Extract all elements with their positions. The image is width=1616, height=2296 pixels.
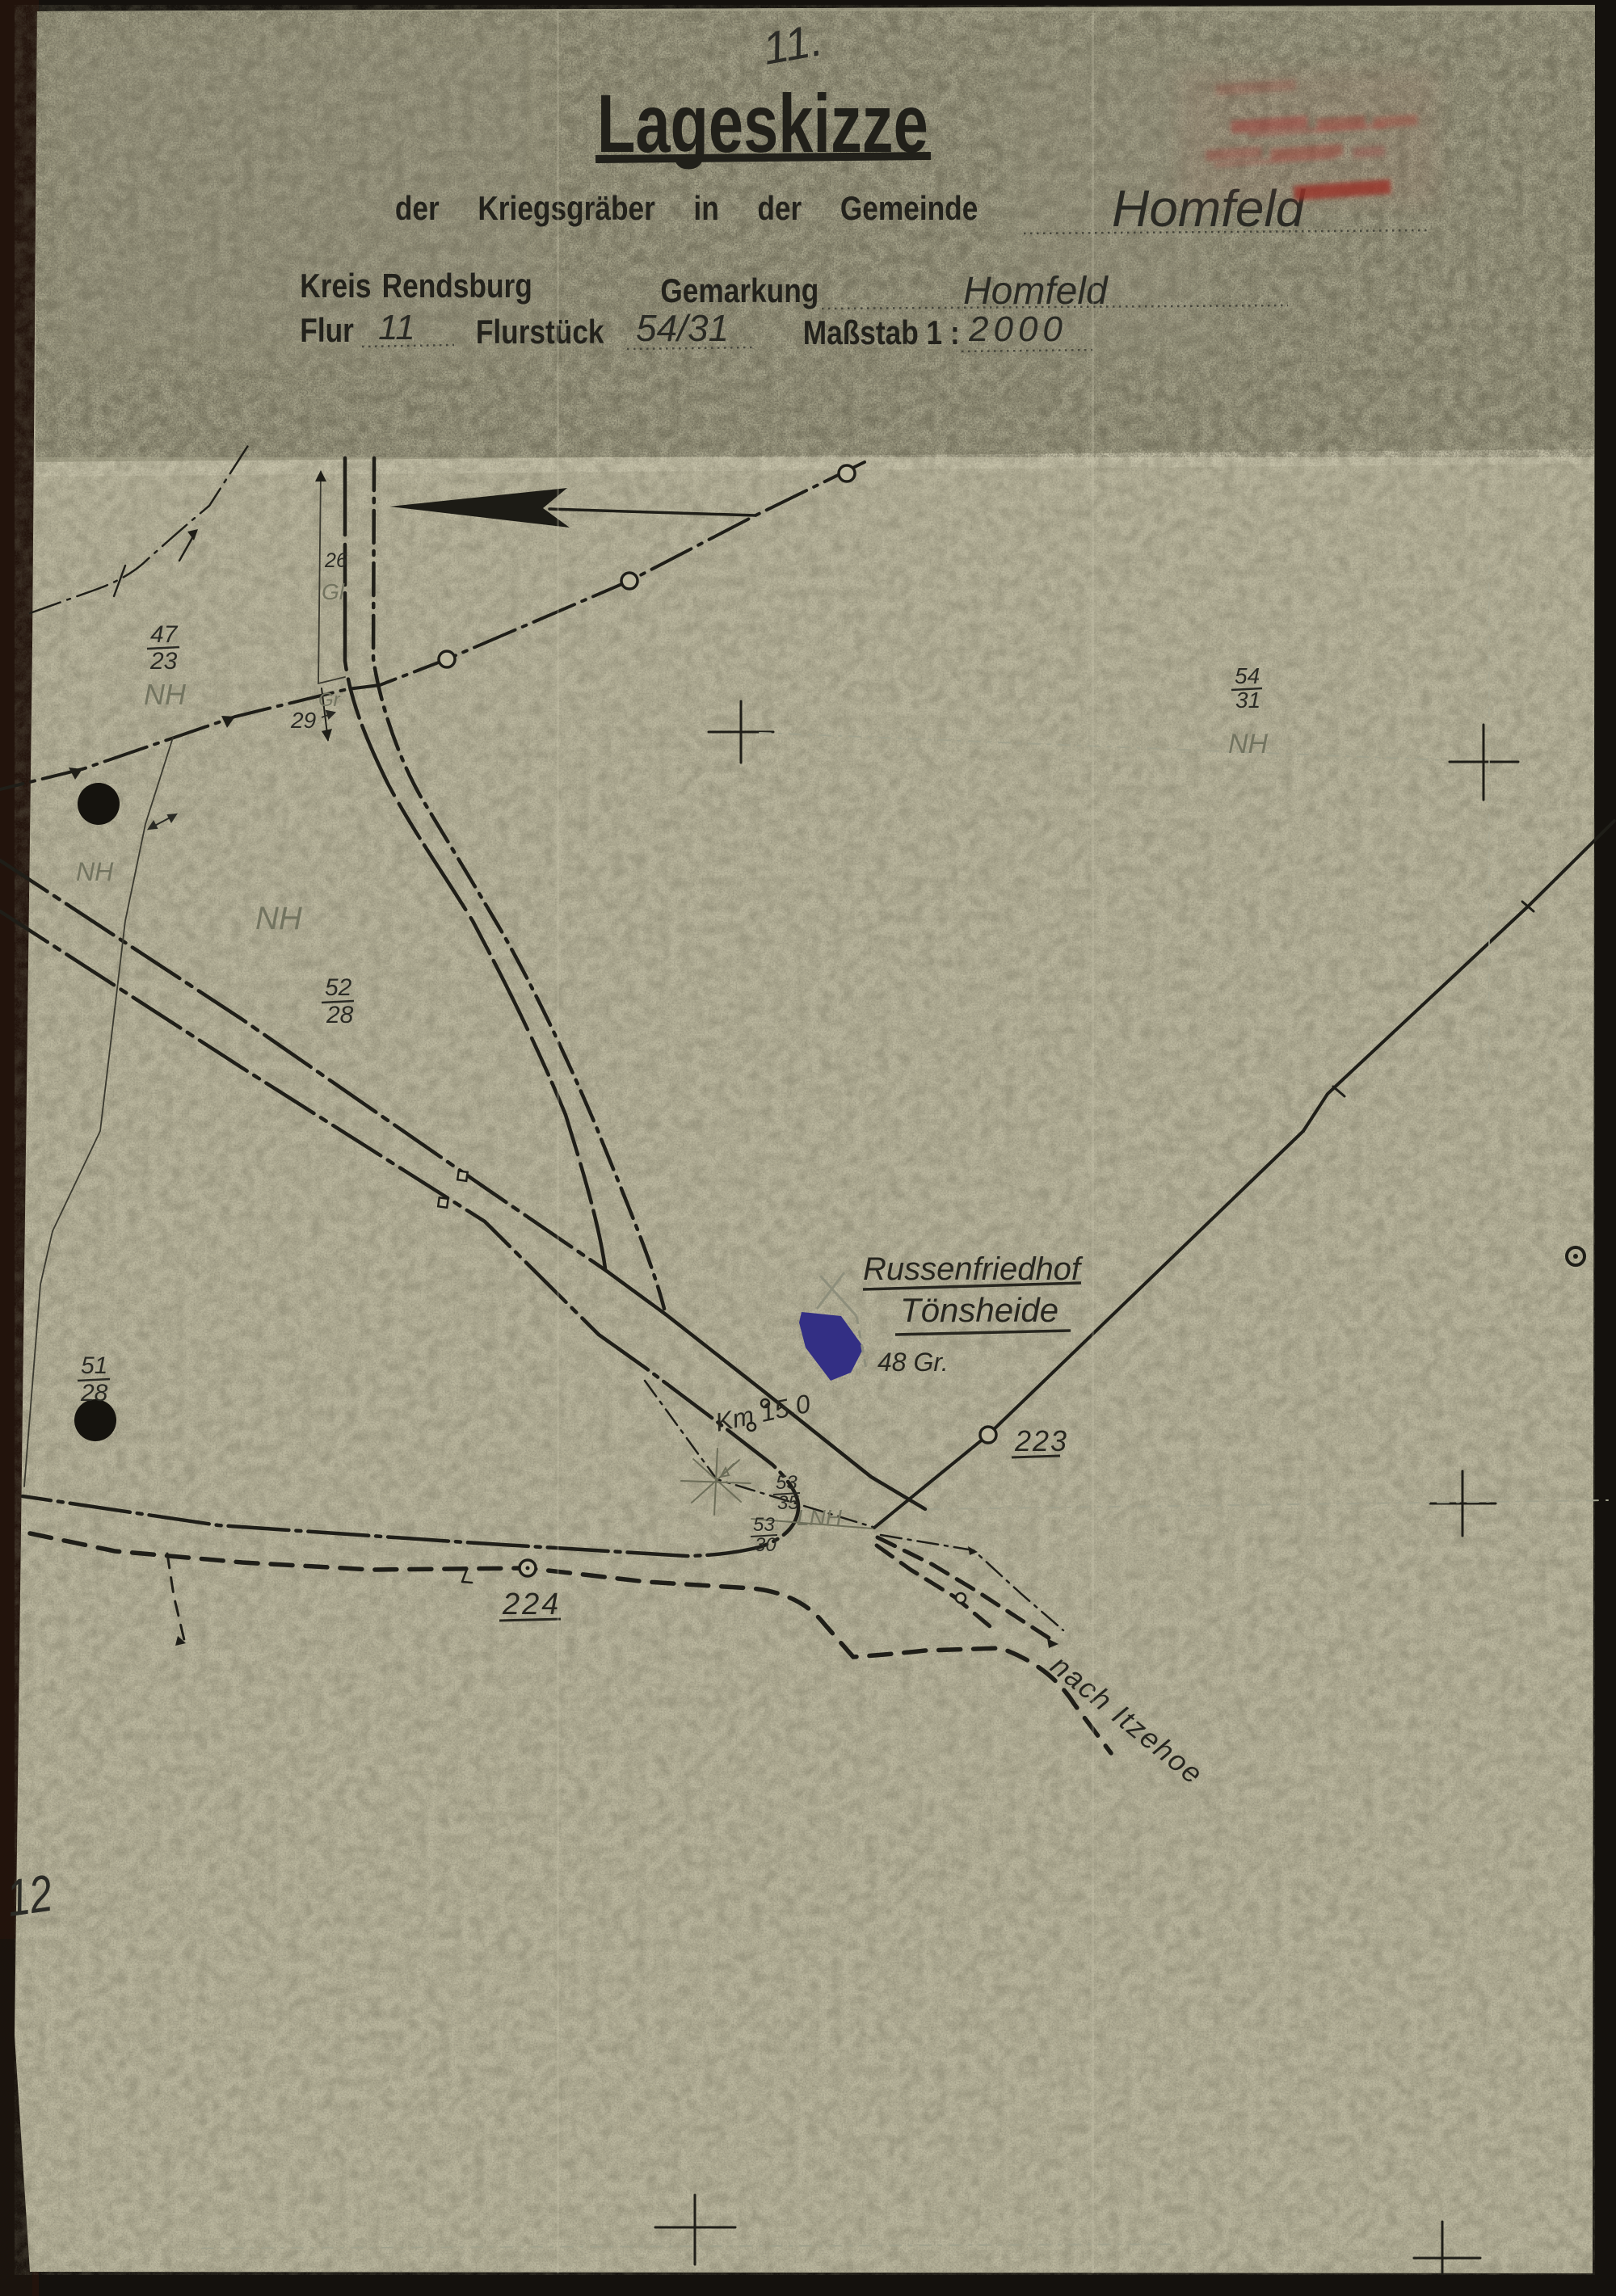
svg-text:48 Gr.: 48 Gr. [877,1348,949,1377]
svg-text:52: 52 [325,974,352,1001]
svg-text:NH: NH [1228,729,1269,759]
svg-text:47: 47 [150,621,179,648]
svg-text:11: 11 [378,308,415,347]
svg-text:LNH: LNH [797,1505,843,1530]
svg-text:NH: NH [144,678,187,711]
svg-text:30: 30 [755,1534,776,1556]
svg-text:Russenfriedhof: Russenfriedhof [863,1251,1084,1287]
svg-text:224: 224 [502,1587,561,1621]
svg-text:Tönsheide: Tönsheide [900,1291,1058,1329]
svg-text:Maßstab 1 :: Maßstab 1 : [803,314,960,352]
svg-text:Gl: Gl [322,579,345,604]
svg-text:31: 31 [1235,688,1260,713]
svg-text:NH: NH [76,857,114,886]
svg-text:53: 53 [753,1514,775,1536]
svg-text:Gemarkung: Gemarkung [660,272,819,310]
svg-text:Flurstück: Flurstück [476,313,604,351]
svg-text:28: 28 [80,1380,108,1407]
svg-text:12: 12 [3,1865,56,1928]
svg-text:Kreis Rendsburg: Kreis Rendsburg [300,267,532,305]
svg-text:der Kriegsgräber in der Gemein: der Kriegsgräber in der Gemeinde [395,190,978,228]
svg-text:28: 28 [326,1002,354,1028]
svg-text:54: 54 [1235,663,1260,688]
svg-text:53: 53 [776,1472,797,1494]
svg-text:26: 26 [324,549,347,572]
svg-text:Flur: Flur [300,312,354,350]
svg-text:54/31: 54/31 [636,307,729,349]
svg-text:NH: NH [255,901,302,936]
svg-text:223: 223 [1014,1424,1068,1457]
svg-text:2000: 2000 [968,309,1067,349]
svg-text:Gr: Gr [318,689,341,711]
svg-text:29: 29 [290,708,316,733]
svg-text:51: 51 [81,1352,107,1379]
svg-text:23: 23 [149,648,178,675]
svg-text:11.: 11. [759,14,827,74]
